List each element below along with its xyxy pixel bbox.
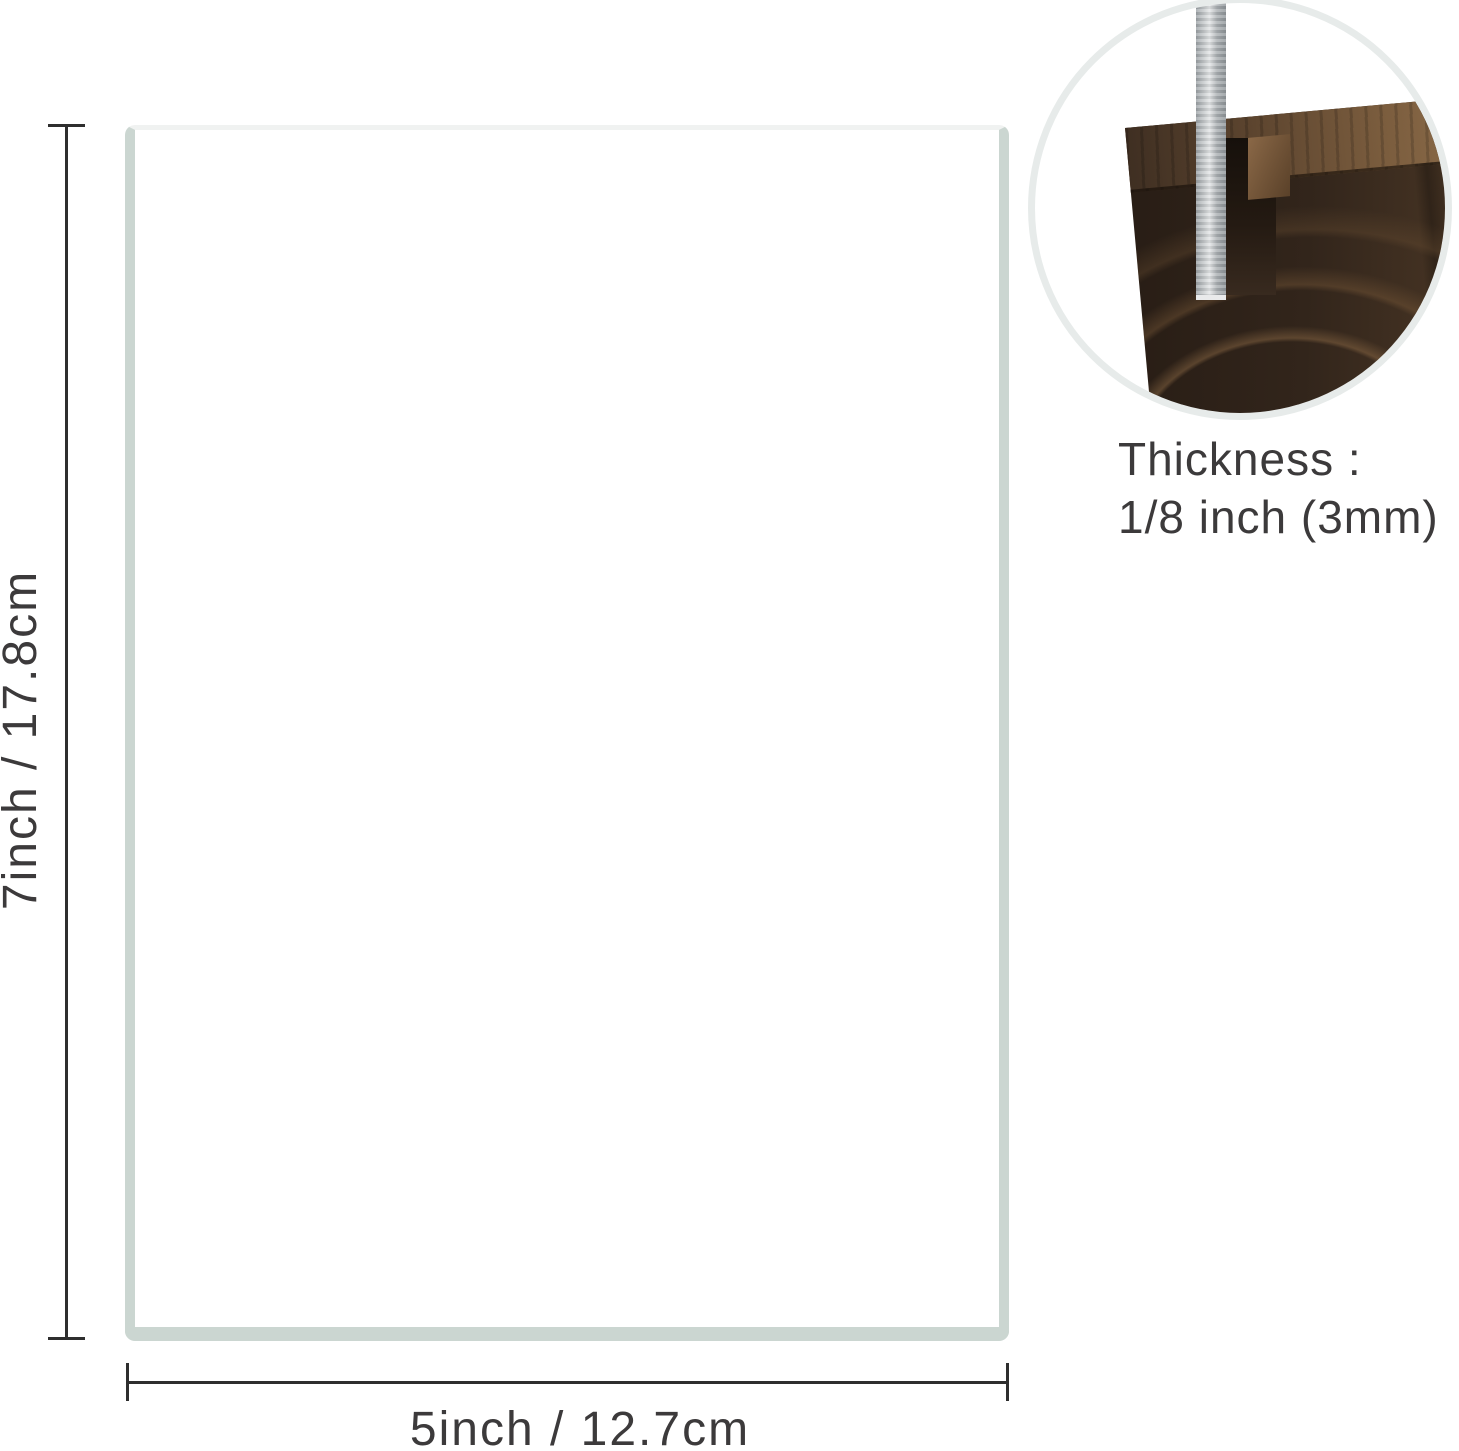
acrylic-sheet-outline: [125, 125, 1009, 1341]
height-dimension-cap-bottom: [48, 1337, 85, 1340]
thickness-caption: Thickness : 1/8 inch (3mm): [1118, 430, 1439, 546]
wood-front-grain: [1131, 151, 1452, 420]
width-dimension-line: [128, 1381, 1007, 1384]
height-dimension-label: 7inch / 17.8cm: [0, 440, 46, 1040]
product-dimension-diagram: 7inch / 17.8cm 5inch / 12.7cm Thickness …: [0, 0, 1459, 1451]
thickness-caption-line2: 1/8 inch (3mm): [1118, 488, 1439, 546]
width-dimension-cap-right: [1006, 1363, 1009, 1401]
width-dimension-label: 5inch / 12.7cm: [270, 1402, 890, 1451]
thickness-caption-line1: Thickness :: [1118, 430, 1439, 488]
thickness-inset-circle: [1028, 0, 1452, 420]
width-dimension-cap-left: [126, 1363, 129, 1401]
card-slot-inner-wall: [1248, 134, 1290, 200]
acrylic-sheet-edge: [1196, 3, 1226, 300]
height-dimension-cap-top: [48, 124, 85, 127]
height-dimension-line: [65, 126, 68, 1337]
